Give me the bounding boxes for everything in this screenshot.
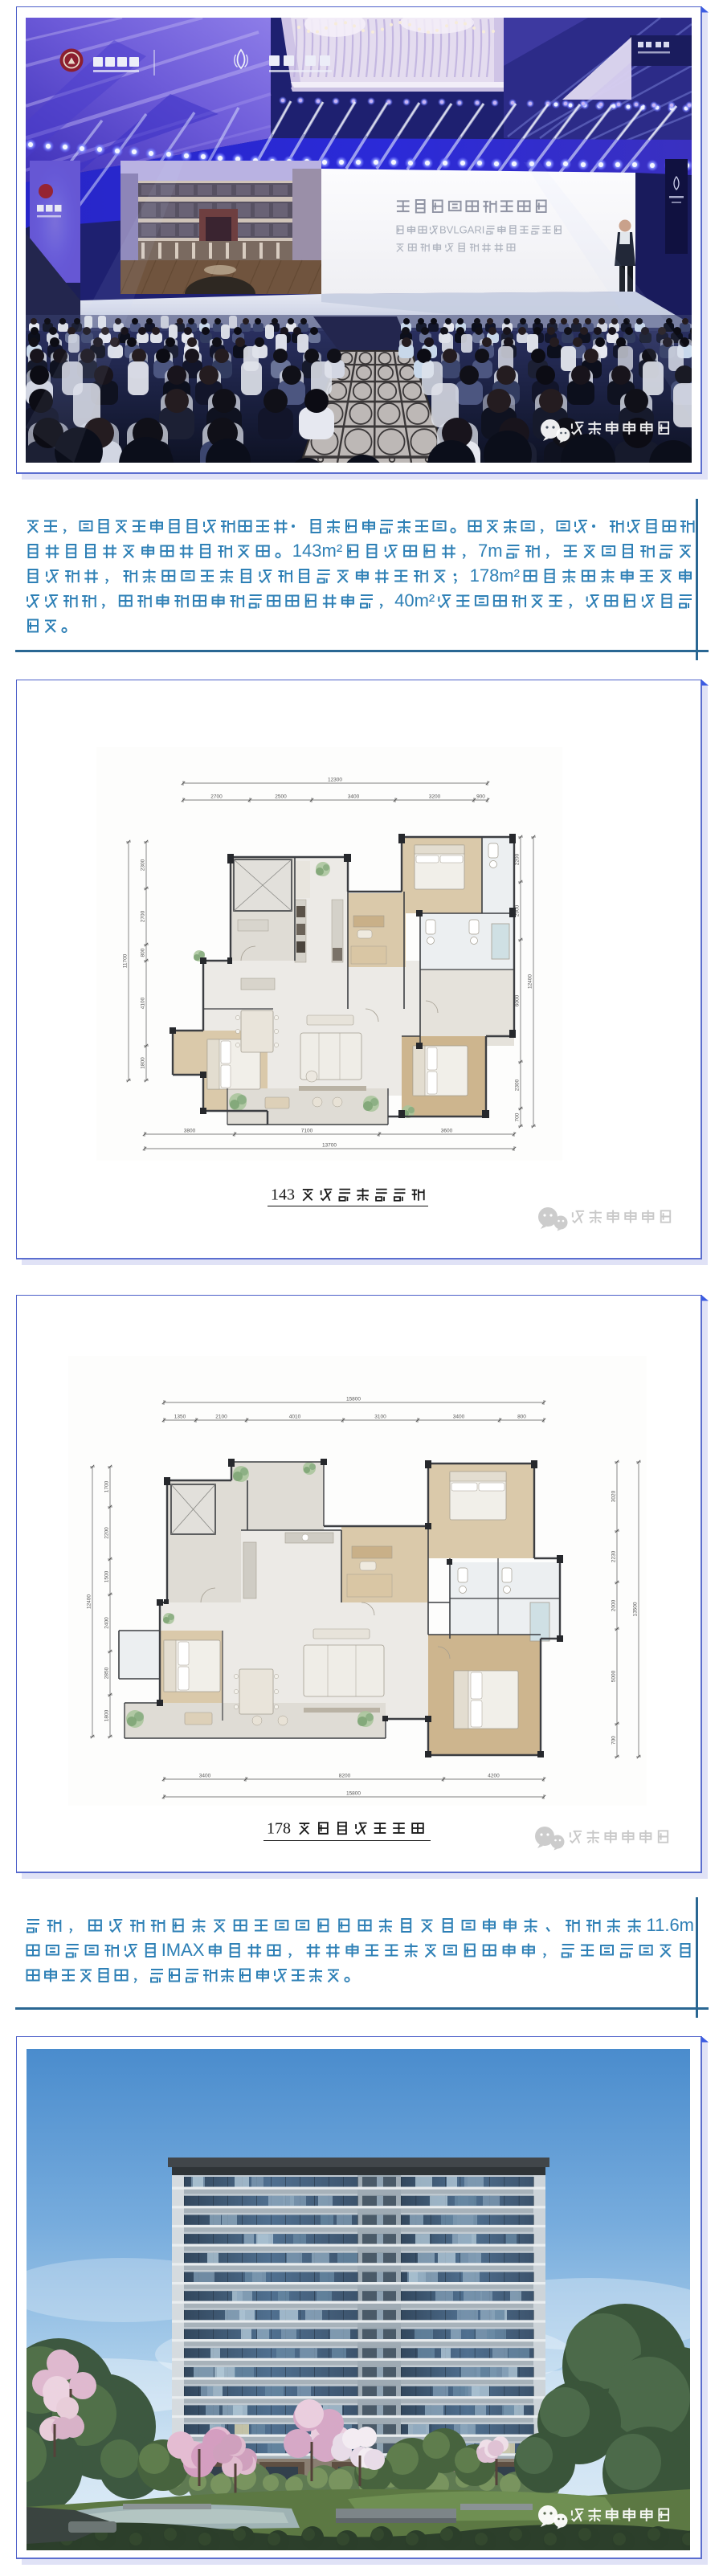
- svg-text:4100: 4100: [141, 997, 146, 1009]
- svg-text:6000: 6000: [515, 994, 521, 1006]
- svg-text:2400: 2400: [104, 1617, 110, 1629]
- svg-text:2000: 2000: [611, 1599, 617, 1611]
- svg-text:15800: 15800: [346, 1397, 361, 1402]
- svg-text:13700: 13700: [322, 1143, 337, 1149]
- svg-text:1500: 1500: [104, 1570, 110, 1582]
- svg-text:1800: 1800: [141, 1057, 146, 1069]
- svg-text:4200: 4200: [488, 1774, 500, 1779]
- svg-text:2200: 2200: [104, 1527, 110, 1539]
- svg-text:11700: 11700: [123, 953, 129, 968]
- svg-text:4010: 4010: [289, 1415, 301, 1420]
- svg-text:7100: 7100: [301, 1129, 313, 1134]
- svg-text:178m²: 178m²: [470, 567, 520, 586]
- svg-text:5000: 5000: [611, 1670, 617, 1682]
- svg-text:12400: 12400: [87, 1594, 92, 1609]
- svg-text:2100: 2100: [215, 1415, 227, 1420]
- svg-text:40m²: 40m²: [394, 592, 435, 610]
- svg-text:2230: 2230: [611, 1550, 617, 1562]
- svg-text:2850: 2850: [104, 1667, 110, 1679]
- svg-text:12300: 12300: [328, 778, 342, 783]
- svg-text:11.6m: 11.6m: [647, 1917, 695, 1935]
- svg-text:13500: 13500: [633, 1602, 639, 1616]
- svg-text:1800: 1800: [104, 1709, 110, 1721]
- svg-text:3020: 3020: [611, 1490, 617, 1502]
- svg-text:800: 800: [517, 1415, 526, 1420]
- svg-text:2200: 2200: [515, 853, 521, 865]
- svg-text:2700: 2700: [210, 794, 223, 800]
- svg-text:3400: 3400: [453, 1415, 465, 1420]
- svg-text:7m: 7m: [478, 542, 503, 561]
- svg-text:700: 700: [515, 1112, 521, 1121]
- svg-text:143m²: 143m²: [292, 542, 342, 561]
- svg-text:2500: 2500: [275, 794, 287, 800]
- svg-text:3400: 3400: [348, 794, 360, 800]
- svg-text:900: 900: [476, 794, 485, 800]
- svg-text:2700: 2700: [141, 910, 146, 922]
- svg-text:178: 178: [267, 1820, 291, 1837]
- svg-text:IMAX: IMAX: [161, 1941, 205, 1960]
- svg-text:800: 800: [141, 948, 146, 957]
- svg-text:2300: 2300: [515, 1079, 521, 1091]
- svg-text:2300: 2300: [141, 859, 146, 871]
- svg-text:143: 143: [271, 1186, 295, 1203]
- svg-text:12400: 12400: [528, 974, 533, 989]
- svg-text:8200: 8200: [339, 1774, 351, 1779]
- svg-text:3100: 3100: [374, 1415, 386, 1420]
- svg-text:3800: 3800: [184, 1129, 196, 1134]
- svg-text:3600: 3600: [441, 1129, 453, 1134]
- svg-text:15800: 15800: [346, 1791, 361, 1797]
- svg-text:3400: 3400: [199, 1774, 211, 1779]
- svg-text:700: 700: [611, 1736, 617, 1745]
- svg-text:BVLGARI: BVLGARI: [439, 224, 484, 236]
- svg-text:1350: 1350: [174, 1415, 186, 1420]
- svg-text:3200: 3200: [429, 794, 441, 800]
- svg-text:1700: 1700: [104, 1480, 110, 1492]
